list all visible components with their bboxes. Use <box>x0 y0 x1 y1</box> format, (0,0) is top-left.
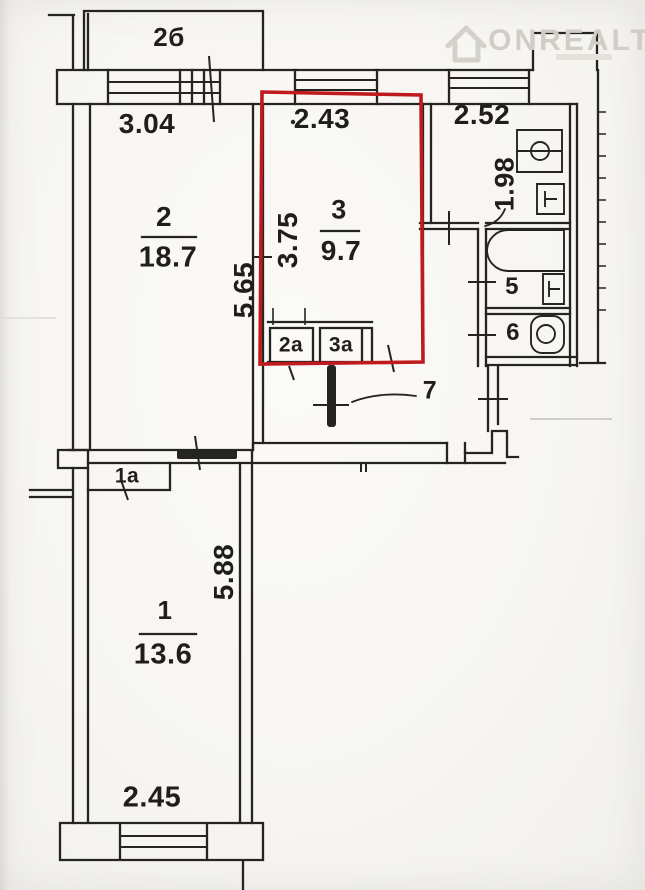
dimension-kitchen-depth: 1.98 <box>492 157 519 212</box>
dimension-room1-depth: 5.88 <box>210 544 238 601</box>
toilet-icon <box>531 316 564 353</box>
leader-lines <box>352 209 505 402</box>
room3-area-label: 9.7 <box>321 237 361 265</box>
washbasin-icon <box>543 274 564 304</box>
scan-crease-lines <box>0 318 612 419</box>
closet-3a-label: 3а <box>329 335 353 356</box>
room1-area-label: 13.6 <box>134 641 192 670</box>
watermark-house-icon <box>448 28 484 60</box>
room7-label: 7 <box>423 379 437 404</box>
dimension-top-middle: 2.43 <box>294 105 351 133</box>
room1-door-leaf <box>177 450 237 459</box>
kitchen-sink-icon <box>517 130 562 172</box>
dimension-room2-depth: 5.65 <box>230 262 258 319</box>
dimension-room3-depth: 3.75 <box>274 212 302 269</box>
room5-label: 5 <box>505 275 519 299</box>
dimension-top-right: 2.52 <box>454 101 511 129</box>
wall-lines <box>30 11 605 890</box>
room1-number-label: 1 <box>158 597 173 623</box>
room1a-label: 1а <box>115 466 139 487</box>
balcony-label: 2б <box>153 24 185 50</box>
room6-label: 6 <box>506 321 520 345</box>
room2-area-label: 18.7 <box>139 244 197 273</box>
hallway-door-leaf <box>327 365 336 427</box>
watermark-brand: ONREALT <box>488 24 645 58</box>
loggia-hatch-ticks <box>598 112 606 310</box>
room3-number-label: 3 <box>331 197 347 224</box>
dimension-top-left: 3.04 <box>119 110 176 138</box>
closet-2a-label: 2а <box>279 335 303 356</box>
stove-icon <box>537 184 564 214</box>
floorplan-scan: ONREALT 2б 3.04 2.43 2.52 1.98 2 18.7 5.… <box>0 0 645 890</box>
watermark-subtext <box>556 54 612 60</box>
room2-number-label: 2 <box>156 203 172 231</box>
dimension-room1-width: 2.45 <box>123 784 181 813</box>
bathtub-icon <box>487 230 564 271</box>
